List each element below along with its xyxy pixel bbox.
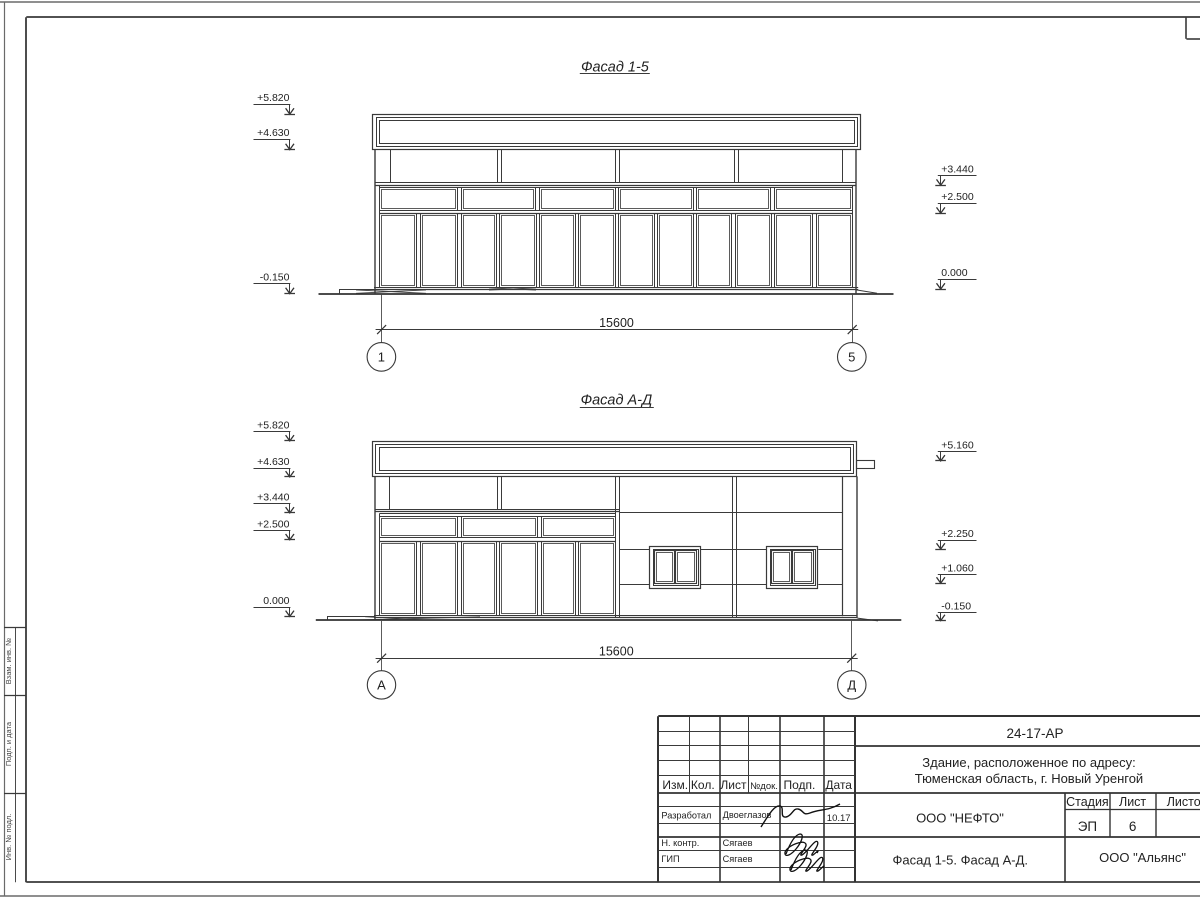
svg-text:0.000: 0.000 bbox=[263, 595, 289, 607]
svg-text:+5.820: +5.820 bbox=[257, 419, 290, 431]
svg-text:+5.820: +5.820 bbox=[257, 92, 290, 104]
svg-text:-0.150: -0.150 bbox=[941, 601, 971, 613]
svg-text:Фасад 1-5. Фасад А-Д.: Фасад 1-5. Фасад А-Д. bbox=[893, 853, 1029, 868]
svg-text:Лист: Лист bbox=[720, 778, 747, 792]
svg-text:Сягаев: Сягаев bbox=[723, 854, 753, 864]
svg-text:24-17-АР: 24-17-АР bbox=[1006, 726, 1063, 741]
svg-text:Стадия: Стадия bbox=[1066, 795, 1109, 809]
svg-text:Фасад А-Д: Фасад А-Д bbox=[581, 393, 653, 409]
svg-text:Фасад 1-5: Фасад 1-5 bbox=[581, 59, 650, 75]
svg-text:+3.440: +3.440 bbox=[257, 492, 290, 504]
svg-text:ООО "НЕФТО": ООО "НЕФТО" bbox=[916, 810, 1004, 825]
svg-text:-0.150: -0.150 bbox=[260, 271, 290, 283]
svg-text:6: 6 bbox=[1129, 819, 1137, 834]
svg-text:№док.: №док. bbox=[750, 781, 778, 792]
svg-text:+4.630: +4.630 bbox=[257, 127, 290, 139]
svg-text:А: А bbox=[377, 678, 386, 693]
svg-text:+3.440: +3.440 bbox=[941, 163, 974, 175]
svg-text:0.000: 0.000 bbox=[941, 267, 967, 279]
svg-text:15600: 15600 bbox=[599, 645, 634, 659]
svg-text:+4.630: +4.630 bbox=[257, 456, 290, 468]
svg-text:ЭП: ЭП bbox=[1078, 819, 1097, 834]
svg-text:Сягаев: Сягаев bbox=[723, 838, 753, 848]
svg-text:Подп. и дата: Подп. и дата bbox=[4, 721, 13, 766]
svg-text:Лист: Лист bbox=[1119, 795, 1146, 809]
svg-text:+1.060: +1.060 bbox=[941, 563, 974, 575]
svg-text:Н. контр.: Н. контр. bbox=[661, 838, 699, 848]
svg-text:+2.500: +2.500 bbox=[257, 519, 290, 531]
svg-text:10.17: 10.17 bbox=[827, 813, 851, 824]
svg-text:15600: 15600 bbox=[599, 316, 634, 330]
svg-text:ООО "Альянс": ООО "Альянс" bbox=[1099, 850, 1186, 865]
svg-text:Д: Д bbox=[847, 678, 856, 693]
svg-text:+2.250: +2.250 bbox=[941, 528, 974, 540]
svg-text:Инв. № подл.: Инв. № подл. bbox=[4, 814, 13, 861]
svg-text:Разработал: Разработал bbox=[661, 811, 711, 821]
svg-text:Взам. инв. №: Взам. инв. № bbox=[4, 638, 13, 684]
svg-text:Тюменская область, г. Новый Ур: Тюменская область, г. Новый Уренгой bbox=[915, 771, 1143, 786]
svg-text:+5.160: +5.160 bbox=[941, 439, 974, 451]
svg-text:Кол.: Кол. bbox=[691, 778, 715, 792]
svg-text:Двоеглазов: Двоеглазов bbox=[723, 810, 772, 820]
svg-text:Листов: Листов bbox=[1167, 795, 1200, 809]
svg-text:1: 1 bbox=[378, 350, 385, 365]
svg-text:Дата: Дата bbox=[825, 778, 852, 792]
svg-text:Подп.: Подп. bbox=[783, 778, 815, 792]
svg-text:Изм.: Изм. bbox=[662, 778, 688, 792]
svg-text:5: 5 bbox=[848, 350, 855, 365]
svg-text:+2.500: +2.500 bbox=[941, 191, 974, 203]
svg-text:Здание, расположенное по адрес: Здание, расположенное по адресу: bbox=[922, 755, 1135, 770]
svg-text:ГИП: ГИП bbox=[661, 854, 679, 864]
